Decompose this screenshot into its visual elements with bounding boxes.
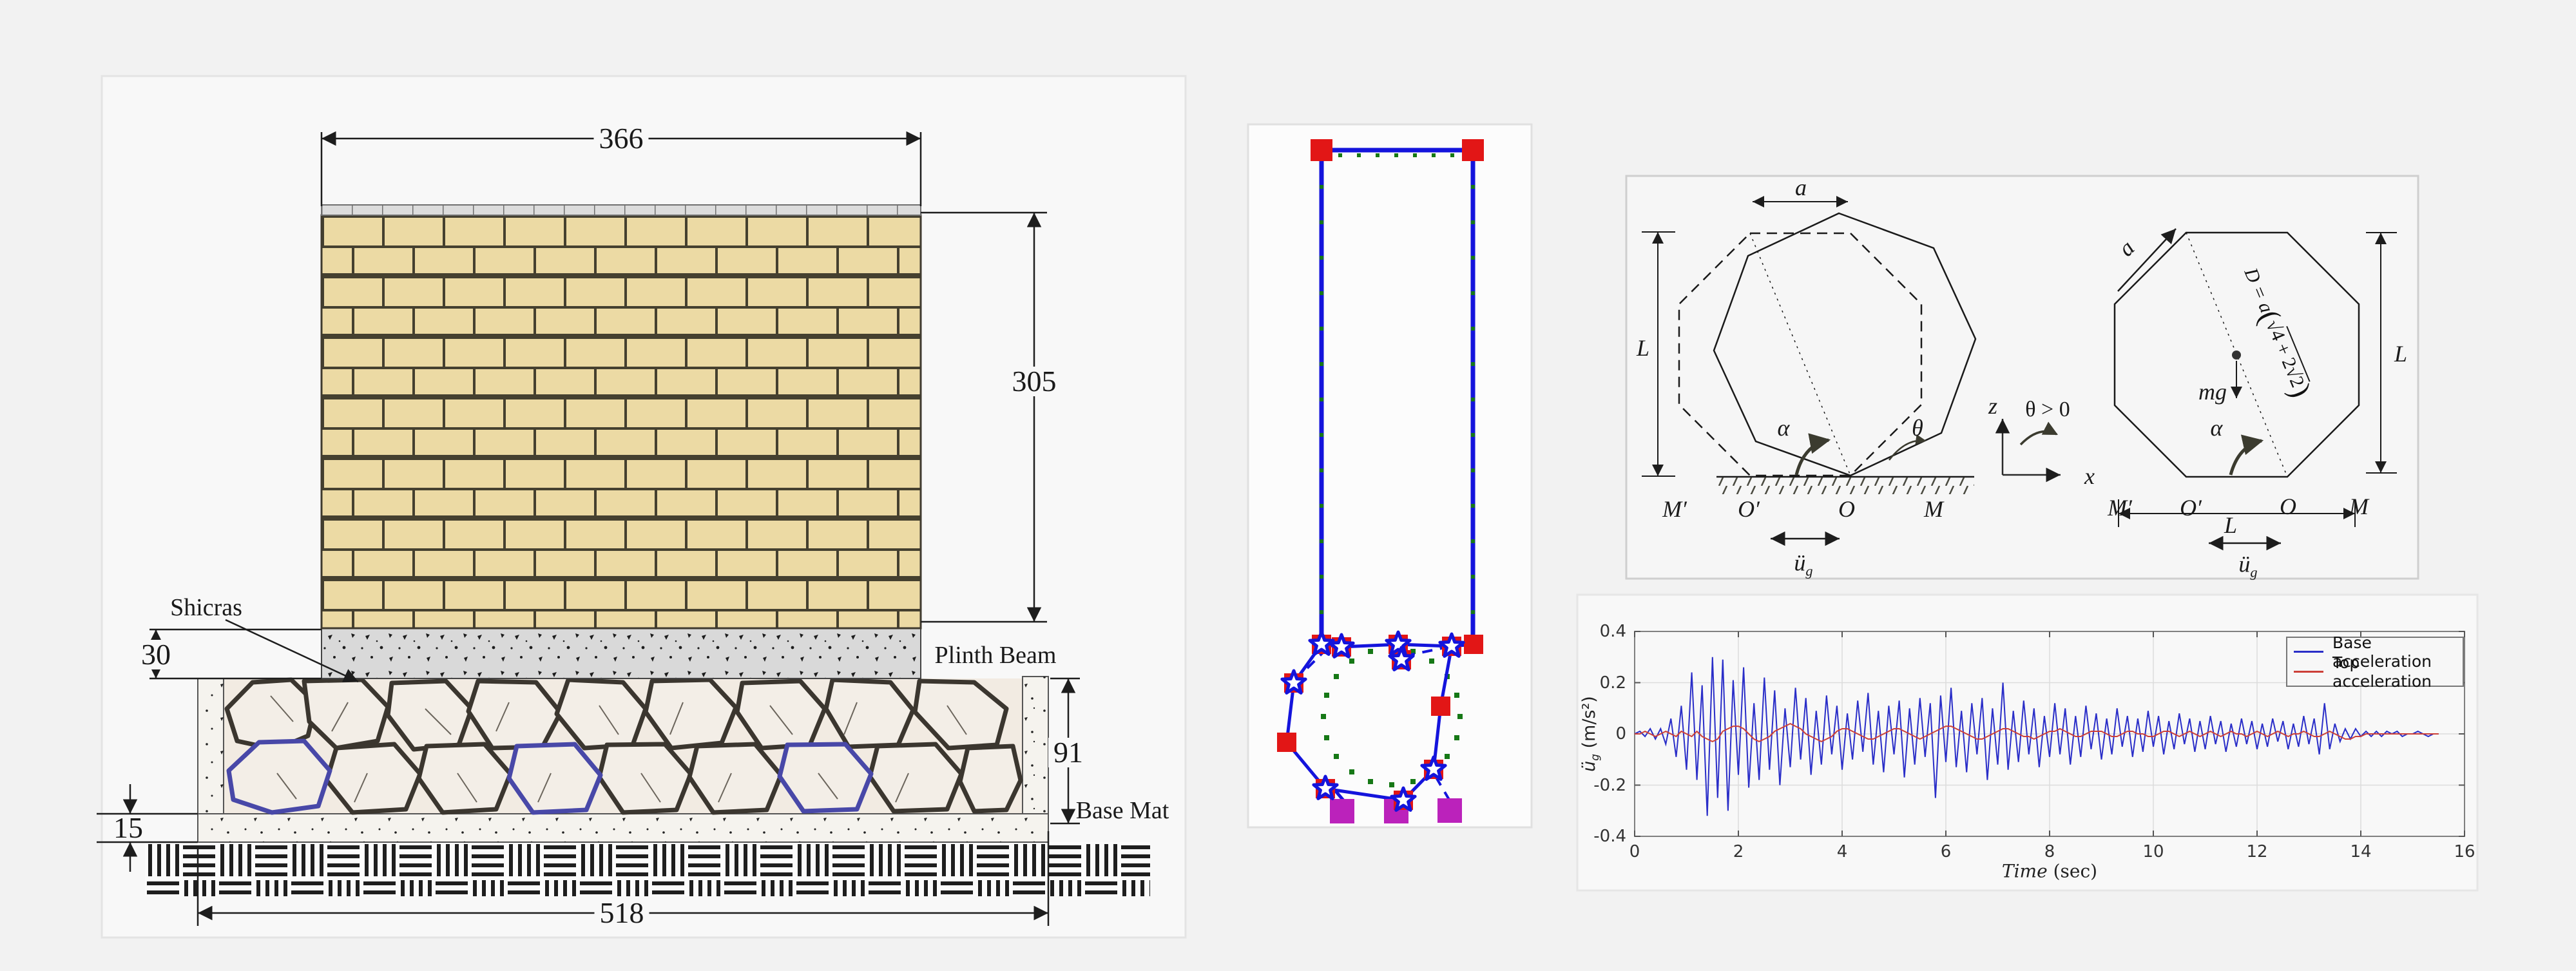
plinth-beam-layer [322,628,921,678]
dim-plinth-thickness: 30 [136,640,176,669]
xtick-label: 6 [1941,842,1952,861]
base-mat-hatch [145,842,1150,896]
label-O-right: O [2280,493,2296,520]
label-mg: mg [2198,378,2227,405]
shicras-stones [227,680,1021,812]
ytick-label: 0.4 [1600,622,1626,641]
label-theta-positive: θ > 0 [2025,398,2070,422]
dim-base-width: 518 [595,898,649,928]
label-a-left: a [1795,174,1807,201]
label-x-axis: x [2084,463,2095,490]
label-alpha-left: α [1778,414,1790,441]
ytick-label: 0.2 [1600,673,1626,693]
ytick-label: 0 [1615,724,1626,744]
label-M-left: M [1924,495,1943,523]
dim-wall-height: 305 [1007,367,1062,396]
label-ug-left: üg [1794,549,1812,579]
plot-xlabel: Time (sec) [2002,861,2097,882]
wall-cap-course [322,205,921,215]
label-shicras: Shicras [170,593,242,622]
xtick-label: 16 [2454,842,2475,861]
ytick-label: -0.4 [1593,827,1626,846]
label-M-prime-right: M′ [2108,494,2132,521]
legend-entry: Top acceleration [2294,662,2456,682]
label-plinth-beam: Plinth Beam [935,641,1057,669]
label-ug-right: üg [2238,550,2257,581]
legend-line-swatch [2294,651,2323,653]
label-L-left: L [1637,334,1649,361]
xtick-label: 12 [2246,842,2267,861]
xtick-label: 0 [1629,842,1640,861]
figure-canvas: 366 305 30 91 15 518 Shicras Plinth Beam… [0,0,2576,971]
label-O-prime-right: O′ [2180,494,2202,521]
xtick-label: 4 [1837,842,1848,861]
dim-fill-height: 91 [1048,738,1088,767]
label-O-left: O [1838,495,1855,523]
label-base-mat: Base Mat [1076,796,1169,825]
xtick-label: 8 [2044,842,2055,861]
label-M-right: M [2349,493,2369,520]
ground-hatch [1716,477,1974,494]
figure-artwork [0,0,2576,971]
label-O-prime-left: O′ [1738,495,1760,523]
label-M-prime-left: M′ [1662,495,1687,523]
xtick-label: 2 [1733,842,1744,861]
fem-model-panel [1248,124,1532,827]
masonry-section-panel [97,76,1186,937]
brick-wall [322,215,921,628]
label-z-axis: z [1988,392,1997,419]
label-L-bottom: L [2224,512,2237,539]
legend-label: Top acceleration [2332,653,2456,691]
xtick-label: 14 [2350,842,2371,861]
label-alpha-right: α [2211,414,2223,441]
dim-wall-width: 366 [594,124,649,153]
ytick-label: -0.2 [1593,776,1626,795]
label-L-right: L [2394,340,2407,367]
plot-ylabel: üg (m/s²) [1579,696,1601,772]
mass-center-dot [2232,351,2241,360]
legend-line-swatch [2294,671,2323,673]
plot-legend: Base accelerationTop acceleration [2286,637,2464,687]
xtick-label: 10 [2142,842,2164,861]
dim-slab-thickness: 15 [113,813,143,843]
label-theta-left: θ [1912,414,1923,441]
